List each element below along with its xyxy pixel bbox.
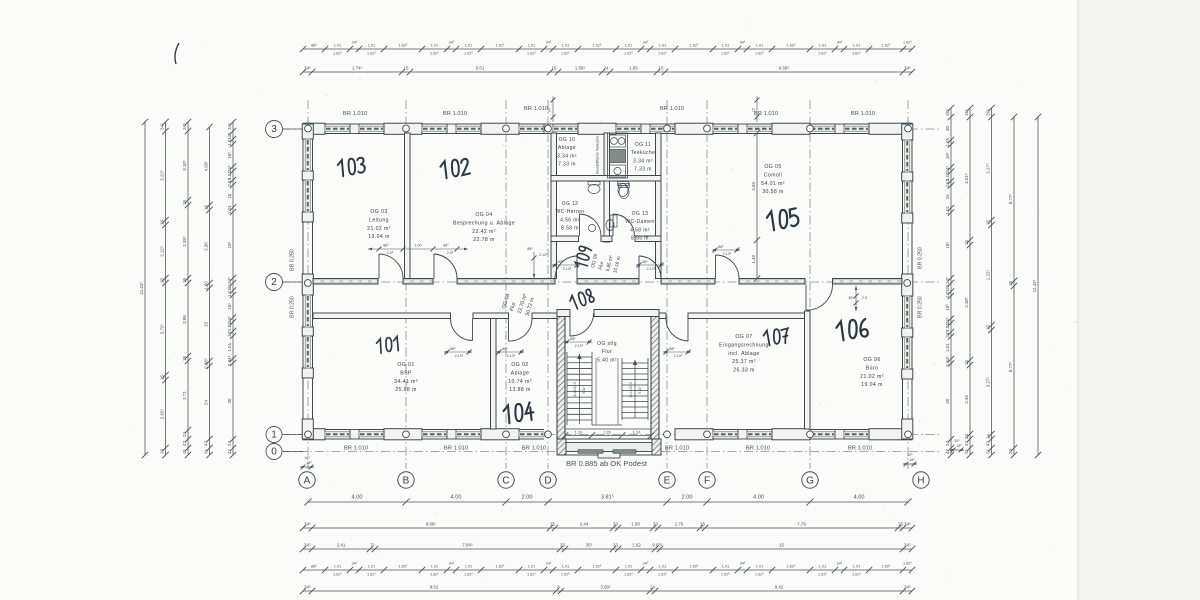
- svg-text:1.01: 1.01: [853, 565, 860, 569]
- svg-text:34⁵: 34⁵: [904, 522, 911, 527]
- svg-text:1.01: 1.01: [819, 44, 826, 48]
- svg-text:BR 0.250: BR 0.250: [918, 296, 924, 318]
- svg-text:2.62: 2.62: [945, 178, 950, 187]
- svg-text:1.01: 1.01: [368, 44, 375, 48]
- svg-text:OG 06: OG 06: [863, 357, 880, 363]
- svg-text:BR 1.010: BR 1.010: [665, 446, 689, 452]
- svg-text:Ablage: Ablage: [511, 370, 530, 376]
- svg-text:9.42: 9.42: [775, 585, 784, 590]
- svg-text:34⁵: 34⁵: [740, 562, 746, 566]
- svg-text:33: 33: [613, 543, 618, 548]
- svg-text:1.01: 1.01: [945, 289, 950, 298]
- svg-text:34⁵: 34⁵: [160, 123, 165, 130]
- svg-text:1.01: 1.01: [562, 44, 569, 48]
- svg-text:2.38⁵: 2.38⁵: [964, 297, 969, 308]
- svg-text:15: 15: [182, 356, 187, 361]
- svg-text:15: 15: [964, 240, 969, 245]
- svg-text:WC-Herren: WC-Herren: [556, 209, 585, 215]
- svg-text:34⁵: 34⁵: [740, 41, 746, 45]
- svg-text:24: 24: [227, 441, 232, 446]
- svg-text:2.84⁵: 2.84⁵: [945, 356, 950, 367]
- svg-text:1.01: 1.01: [659, 44, 666, 48]
- svg-text:15: 15: [964, 360, 969, 365]
- svg-text:2.13⁵: 2.13⁵: [455, 354, 464, 358]
- svg-text:9.68⁵: 9.68⁵: [652, 543, 663, 548]
- svg-text:E: E: [664, 476, 671, 487]
- svg-text:1.62⁵: 1.62⁵: [496, 565, 505, 569]
- svg-text:33: 33: [613, 522, 618, 527]
- svg-text:1.74⁵: 1.74⁵: [352, 66, 363, 71]
- svg-text:18.41/25.0: 18.41/25.0: [629, 382, 633, 398]
- svg-text:Besprechung u. Ablage: Besprechung u. Ablage: [453, 220, 515, 226]
- svg-text:1.01: 1.01: [227, 205, 232, 214]
- svg-text:incl. Ablage: incl. Ablage: [728, 351, 759, 357]
- svg-text:1.01: 1.01: [431, 565, 438, 569]
- svg-text:BR 0.885 ab OK Podest: BR 0.885 ab OK Podest: [566, 459, 648, 468]
- svg-text:4.01⁵: 4.01⁵: [964, 173, 969, 184]
- svg-text:34⁵: 34⁵: [546, 562, 552, 566]
- svg-text:1.62⁵: 1.62⁵: [624, 573, 633, 577]
- svg-text:1.01: 1.01: [853, 44, 860, 48]
- svg-text:1.10: 1.10: [575, 430, 584, 435]
- svg-text:1.62⁵: 1.62⁵: [903, 41, 912, 45]
- svg-text:15: 15: [552, 66, 557, 71]
- svg-text:1.01: 1.01: [334, 44, 341, 48]
- svg-text:18⁵: 18⁵: [227, 241, 232, 248]
- svg-text:30: 30: [945, 126, 950, 131]
- svg-text:1.01: 1.01: [465, 44, 472, 48]
- svg-text:30: 30: [227, 132, 232, 137]
- svg-text:WC-Damen: WC-Damen: [625, 219, 654, 225]
- svg-text:1: 1: [271, 430, 277, 441]
- svg-text:4.00: 4.00: [352, 495, 363, 501]
- svg-text:1.01: 1.01: [227, 137, 232, 146]
- svg-text:1.62⁵: 1.62⁵: [755, 573, 764, 577]
- svg-text:18.41/25.0: 18.41/25.0: [573, 382, 577, 398]
- svg-text:3.81⁵: 3.81⁵: [601, 494, 614, 501]
- svg-text:35⁵: 35⁵: [848, 296, 854, 300]
- svg-text:34⁵: 34⁵: [449, 562, 455, 566]
- svg-text:BSP: BSP: [400, 370, 412, 376]
- svg-text:1.01: 1.01: [431, 44, 438, 48]
- svg-text:15: 15: [550, 522, 555, 527]
- svg-text:1.01: 1.01: [945, 323, 950, 332]
- svg-text:18⁵: 18⁵: [227, 152, 232, 159]
- svg-text:1.01: 1.01: [945, 137, 950, 146]
- svg-text:BR 1.010: BR 1.010: [443, 111, 467, 117]
- svg-text:88⁵: 88⁵: [450, 347, 456, 351]
- svg-text:12.43⁵: 12.43⁵: [139, 282, 144, 295]
- svg-text:2.13⁵: 2.13⁵: [575, 344, 584, 348]
- svg-text:8.58 m: 8.58 m: [561, 226, 579, 232]
- svg-text:6⁵: 6⁵: [204, 449, 209, 453]
- svg-text:88⁵: 88⁵: [502, 347, 508, 351]
- svg-text:BR 0.250: BR 0.250: [290, 249, 296, 271]
- svg-text:OG 11: OG 11: [635, 142, 651, 148]
- svg-text:34⁵: 34⁵: [227, 316, 232, 323]
- svg-text:26.33 m: 26.33 m: [733, 368, 755, 374]
- svg-text:5.40 m²: 5.40 m²: [597, 357, 617, 363]
- svg-text:24: 24: [650, 585, 655, 590]
- svg-text:25.37 m²: 25.37 m²: [732, 359, 756, 365]
- svg-text:1.62⁵: 1.62⁵: [658, 52, 667, 56]
- svg-text:34⁵: 34⁵: [945, 331, 950, 338]
- svg-text:H: H: [917, 476, 924, 487]
- svg-text:1.01: 1.01: [562, 565, 569, 569]
- svg-text:18⁵: 18⁵: [945, 152, 950, 159]
- svg-text:1.01: 1.01: [659, 565, 666, 569]
- svg-text:BR 1.010: BR 1.010: [522, 446, 546, 452]
- svg-text:9.62: 9.62: [430, 585, 439, 590]
- svg-text:1.85: 1.85: [629, 66, 638, 71]
- svg-text:34⁵: 34⁵: [227, 277, 232, 284]
- svg-text:34⁵: 34⁵: [304, 66, 311, 71]
- svg-text:5.61: 5.61: [476, 66, 485, 71]
- svg-text:3.69: 3.69: [751, 182, 756, 191]
- svg-text:1.22⁵: 1.22⁵: [986, 270, 991, 281]
- svg-text:5.77⁵: 5.77⁵: [1008, 194, 1013, 205]
- svg-text:19.04 m: 19.04 m: [368, 234, 390, 240]
- svg-text:4.00: 4.00: [451, 495, 462, 501]
- svg-text:15: 15: [1008, 281, 1013, 286]
- svg-text:3.72⁵: 3.72⁵: [160, 324, 165, 335]
- svg-text:3.10⁵: 3.10⁵: [182, 160, 187, 171]
- svg-text:1.62⁵: 1.62⁵: [818, 573, 827, 577]
- svg-text:4.58 m²: 4.58 m²: [630, 227, 650, 233]
- svg-text:OG 10: OG 10: [559, 137, 576, 143]
- svg-text:1.62⁵: 1.62⁵: [430, 52, 439, 56]
- svg-text:47: 47: [945, 449, 950, 454]
- svg-text:34⁵: 34⁵: [304, 543, 311, 548]
- svg-text:BR 1.010: BR 1.010: [746, 446, 770, 452]
- svg-text:34⁵: 34⁵: [643, 41, 649, 45]
- svg-text:1.01: 1.01: [227, 288, 232, 297]
- svg-text:30.58 m: 30.58 m: [762, 189, 784, 195]
- svg-text:36⁵: 36⁵: [945, 109, 950, 116]
- svg-text:1.01: 1.01: [625, 565, 632, 569]
- svg-text:18⁵: 18⁵: [909, 458, 915, 462]
- svg-text:18⁵: 18⁵: [945, 242, 950, 249]
- svg-text:1.62⁵: 1.62⁵: [399, 565, 408, 569]
- svg-text:1.40: 1.40: [751, 254, 756, 263]
- svg-text:1.10: 1.10: [633, 430, 642, 435]
- svg-text:34⁵: 34⁵: [304, 522, 311, 527]
- svg-text:1.62⁵: 1.62⁵: [367, 52, 376, 56]
- svg-text:1.50⁵: 1.50⁵: [575, 66, 586, 71]
- svg-text:24: 24: [548, 108, 552, 112]
- svg-text:15: 15: [945, 194, 950, 199]
- svg-text:88⁵: 88⁵: [527, 247, 533, 251]
- svg-text:15: 15: [204, 205, 209, 210]
- svg-text:18⁵: 18⁵: [945, 304, 950, 311]
- svg-text:34⁵: 34⁵: [904, 66, 911, 71]
- svg-text:15: 15: [182, 200, 187, 205]
- svg-text:88⁵: 88⁵: [311, 44, 317, 48]
- svg-text:10⁵: 10⁵: [304, 456, 310, 460]
- svg-text:1.26: 1.26: [603, 430, 612, 435]
- svg-text:OG 13: OG 13: [632, 211, 649, 217]
- svg-text:15: 15: [700, 522, 705, 527]
- svg-text:BR 1.010: BR 1.010: [848, 446, 872, 452]
- svg-text:2.35⁵: 2.35⁵: [182, 236, 187, 247]
- svg-text:15: 15: [986, 220, 991, 225]
- svg-text:7.84⁵: 7.84⁵: [462, 543, 473, 548]
- svg-text:47: 47: [964, 441, 969, 446]
- svg-text:15: 15: [182, 278, 187, 283]
- svg-text:2.36: 2.36: [964, 395, 969, 404]
- svg-text:34⁵: 34⁵: [643, 562, 649, 566]
- svg-text:2: 2: [271, 277, 277, 288]
- svg-text:1.01: 1.01: [465, 565, 472, 569]
- svg-text:3.34 m²: 3.34 m²: [633, 158, 653, 164]
- svg-text:15: 15: [659, 66, 664, 71]
- svg-text:1.62⁵: 1.62⁵: [593, 565, 602, 569]
- svg-text:Comoll: Comoll: [764, 172, 783, 178]
- svg-text:6⁵: 6⁵: [182, 449, 187, 453]
- svg-text:88⁵: 88⁵: [718, 245, 724, 249]
- svg-text:1.62⁵: 1.62⁵: [561, 573, 570, 577]
- svg-text:1.62⁵: 1.62⁵: [399, 44, 408, 48]
- svg-text:1.01: 1.01: [334, 565, 341, 569]
- svg-text:10⁵: 10⁵: [907, 453, 913, 457]
- svg-text:34⁵: 34⁵: [182, 123, 187, 130]
- svg-text:OG 01: OG 01: [397, 362, 414, 368]
- svg-text:1.01: 1.01: [528, 44, 535, 48]
- svg-text:34.41 m²: 34.41 m²: [394, 379, 418, 385]
- svg-text:25.68 m: 25.68 m: [395, 387, 417, 393]
- svg-text:BR 0.250: BR 0.250: [290, 296, 296, 318]
- svg-text:1.01: 1.01: [227, 322, 232, 331]
- svg-text:36⁵: 36⁵: [986, 109, 991, 116]
- svg-text:Leitung: Leitung: [369, 217, 389, 223]
- svg-text:15: 15: [779, 543, 784, 548]
- svg-text:2.84⁵: 2.84⁵: [227, 355, 232, 366]
- svg-text:24: 24: [986, 434, 991, 439]
- svg-text:1.62⁵: 1.62⁵: [624, 52, 633, 56]
- svg-text:34⁵: 34⁵: [352, 562, 358, 566]
- svg-text:D: D: [544, 476, 551, 487]
- svg-text:24: 24: [182, 432, 187, 437]
- svg-text:1.01: 1.01: [722, 565, 729, 569]
- svg-text:5.77⁵: 5.77⁵: [1008, 362, 1013, 373]
- svg-text:OG 02: OG 02: [511, 362, 528, 368]
- svg-text:18⁵: 18⁵: [306, 461, 312, 465]
- svg-text:1.62⁵: 1.62⁵: [787, 565, 796, 569]
- svg-text:OG 12: OG 12: [562, 201, 579, 207]
- svg-text:15: 15: [160, 278, 165, 283]
- svg-text:19.04 m: 19.04 m: [861, 382, 883, 388]
- svg-text:1.62⁵: 1.62⁵: [464, 52, 473, 56]
- svg-text:1.62⁵: 1.62⁵: [882, 565, 891, 569]
- svg-text:1.62⁵: 1.62⁵: [527, 52, 536, 56]
- svg-text:18⁵: 18⁵: [956, 444, 962, 448]
- svg-text:34⁵: 34⁵: [227, 123, 232, 130]
- svg-text:Flur: Flur: [602, 349, 612, 355]
- svg-text:88⁵: 88⁵: [669, 347, 675, 351]
- svg-text:15: 15: [752, 108, 756, 112]
- svg-text:1.62⁵: 1.62⁵: [333, 52, 342, 56]
- svg-text:1.58: 1.58: [631, 522, 640, 527]
- svg-text:1.62⁵: 1.62⁵: [787, 44, 796, 48]
- svg-text:2.71: 2.71: [182, 391, 187, 400]
- svg-text:15: 15: [160, 220, 165, 225]
- svg-text:28: 28: [160, 449, 165, 454]
- svg-text:Büro: Büro: [866, 365, 879, 371]
- svg-text:34⁵: 34⁵: [227, 330, 232, 337]
- svg-text:1.01: 1.01: [368, 565, 375, 569]
- svg-text:3.27⁵: 3.27⁵: [986, 163, 991, 174]
- svg-text:9.51⁵: 9.51⁵: [582, 385, 586, 393]
- svg-text:OG 05: OG 05: [764, 164, 781, 170]
- svg-text:24: 24: [204, 400, 209, 405]
- svg-text:Ablage: Ablage: [558, 145, 576, 151]
- svg-text:47: 47: [227, 449, 232, 454]
- svg-text:C: C: [502, 476, 509, 487]
- svg-text:2.44: 2.44: [580, 522, 589, 527]
- svg-text:1.62⁵: 1.62⁵: [333, 573, 342, 577]
- svg-text:24: 24: [964, 434, 969, 439]
- svg-text:15: 15: [986, 325, 991, 330]
- svg-text:15: 15: [204, 322, 209, 327]
- svg-text:2.13⁵: 2.13⁵: [674, 354, 683, 358]
- svg-text:2.62⁵: 2.62⁵: [160, 409, 165, 420]
- svg-text:34⁵: 34⁵: [546, 41, 552, 45]
- svg-text:34⁵: 34⁵: [837, 562, 843, 566]
- svg-text:2.88: 2.88: [182, 315, 187, 324]
- svg-text:A: A: [304, 476, 311, 487]
- svg-text:7.33 m: 7.33 m: [634, 167, 652, 173]
- svg-text:Eingangsrechnung: Eingangsrechnung: [719, 342, 769, 348]
- svg-text:24: 24: [945, 441, 950, 446]
- svg-text:F: F: [704, 476, 710, 487]
- svg-text:1.62⁵: 1.62⁵: [690, 44, 699, 48]
- svg-text:Ausstellfläche Teeküche: Ausstellfläche Teeküche: [596, 136, 600, 175]
- svg-text:9.58⁵: 9.58⁵: [779, 66, 790, 71]
- svg-text:BR 1.010: BR 1.010: [343, 111, 367, 117]
- svg-text:35⁵: 35⁵: [586, 543, 593, 548]
- svg-text:1.00: 1.00: [415, 244, 422, 248]
- svg-text:15: 15: [160, 375, 165, 380]
- svg-text:1.62⁵: 1.62⁵: [852, 52, 861, 56]
- svg-text:30: 30: [227, 398, 232, 403]
- svg-text:54.01 m²: 54.01 m²: [761, 181, 785, 187]
- svg-text:BR 1.010: BR 1.010: [524, 106, 548, 112]
- svg-text:7⁵: 7⁵: [370, 543, 374, 548]
- svg-text:BR 0.250: BR 0.250: [918, 247, 924, 269]
- svg-text:3.68⁵: 3.68⁵: [600, 585, 611, 590]
- svg-text:1.01: 1.01: [945, 205, 950, 214]
- svg-text:1.62⁵: 1.62⁵: [561, 52, 570, 56]
- svg-text:2.12⁵: 2.12⁵: [160, 246, 165, 257]
- svg-text:G: G: [806, 476, 814, 487]
- svg-text:6⁵: 6⁵: [986, 449, 991, 453]
- svg-text:4.56 m²: 4.56 m²: [560, 217, 580, 223]
- svg-text:2.30: 2.30: [204, 242, 209, 251]
- svg-text:1.62⁵: 1.62⁵: [496, 44, 505, 48]
- svg-text:36⁵: 36⁵: [964, 109, 969, 116]
- svg-text:1.01: 1.01: [722, 44, 729, 48]
- svg-text:34⁵: 34⁵: [227, 165, 232, 172]
- svg-text:3.22⁵: 3.22⁵: [160, 170, 165, 181]
- svg-text:34⁵: 34⁵: [449, 41, 455, 45]
- svg-text:24: 24: [604, 66, 609, 71]
- svg-text:88⁵: 88⁵: [443, 244, 449, 248]
- svg-text:B: B: [403, 476, 410, 487]
- svg-text:9.51⁵: 9.51⁵: [638, 385, 642, 393]
- svg-text:2.0⁵: 2.0⁵: [387, 251, 394, 255]
- svg-text:Teeküche: Teeküche: [631, 150, 656, 156]
- svg-text:30: 30: [945, 284, 950, 289]
- svg-text:1.62⁵: 1.62⁵: [367, 573, 376, 577]
- svg-text:18⁵: 18⁵: [227, 303, 232, 310]
- svg-text:2.13⁵: 2.13⁵: [563, 267, 572, 271]
- svg-text:15: 15: [227, 193, 232, 198]
- svg-text:22.78 m: 22.78 m: [473, 237, 495, 243]
- svg-text:1.62⁵: 1.62⁵: [852, 573, 861, 577]
- svg-text:22.42 m²: 22.42 m²: [472, 229, 496, 235]
- svg-text:1.62⁵: 1.62⁵: [690, 565, 699, 569]
- svg-text:BR 1.010: BR 1.010: [851, 111, 875, 117]
- svg-text:34⁵: 34⁵: [352, 41, 358, 45]
- svg-text:12.43⁵: 12.43⁵: [1032, 279, 1037, 292]
- svg-text:1.60: 1.60: [204, 281, 209, 290]
- svg-text:34⁵: 34⁵: [945, 317, 950, 324]
- svg-text:1.62⁵: 1.62⁵: [527, 573, 536, 577]
- svg-text:10.74 m²: 10.74 m²: [508, 379, 532, 385]
- svg-text:7.33 m: 7.33 m: [558, 162, 576, 168]
- svg-text:OG stlg: OG stlg: [597, 341, 617, 347]
- svg-text:47: 47: [204, 441, 209, 446]
- svg-text:1.62⁵: 1.62⁵: [818, 52, 827, 56]
- svg-text:30: 30: [227, 284, 232, 289]
- svg-text:BR 1.010: BR 1.010: [444, 446, 468, 452]
- svg-text:1.01: 1.01: [227, 342, 232, 351]
- svg-text:3.27⁵: 3.27⁵: [986, 377, 991, 388]
- svg-text:33: 33: [653, 522, 658, 527]
- svg-text:1.01: 1.01: [528, 565, 535, 569]
- svg-text:34⁵: 34⁵: [945, 166, 950, 173]
- svg-text:9.68⁵: 9.68⁵: [426, 522, 437, 527]
- svg-text:1.01: 1.01: [756, 565, 763, 569]
- svg-text:2.62: 2.62: [227, 178, 232, 187]
- svg-text:7.79: 7.79: [797, 522, 806, 527]
- svg-text:47: 47: [986, 441, 991, 446]
- svg-text:34⁵: 34⁵: [904, 543, 911, 548]
- svg-text:30: 30: [945, 398, 950, 403]
- svg-text:2.00: 2.00: [522, 495, 533, 501]
- svg-text:1.62⁵: 1.62⁵: [903, 562, 912, 566]
- svg-text:15: 15: [404, 66, 409, 71]
- svg-text:88⁵: 88⁵: [311, 565, 317, 569]
- svg-text:OG 04: OG 04: [475, 212, 492, 218]
- svg-text:15: 15: [898, 522, 903, 527]
- svg-text:OG 03: OG 03: [370, 209, 387, 215]
- svg-text:0: 0: [271, 447, 277, 458]
- svg-text:88⁵: 88⁵: [642, 260, 648, 264]
- svg-text:21.02 m²: 21.02 m²: [860, 374, 884, 380]
- svg-text:2.12⁵: 2.12⁵: [539, 253, 548, 257]
- svg-text:1.01: 1.01: [819, 565, 826, 569]
- svg-text:21.02 m²: 21.02 m²: [367, 226, 391, 232]
- svg-text:10⁵: 10⁵: [954, 439, 960, 443]
- svg-text:2.00: 2.00: [682, 495, 693, 501]
- svg-text:1.62⁵: 1.62⁵: [755, 52, 764, 56]
- svg-text:2.0⁵: 2.0⁵: [447, 251, 454, 255]
- svg-text:2.13⁵: 2.13⁵: [723, 252, 732, 256]
- svg-text:2.13⁵: 2.13⁵: [507, 354, 516, 358]
- svg-text:3: 3: [271, 124, 277, 135]
- svg-text:2.13⁵: 2.13⁵: [647, 267, 656, 271]
